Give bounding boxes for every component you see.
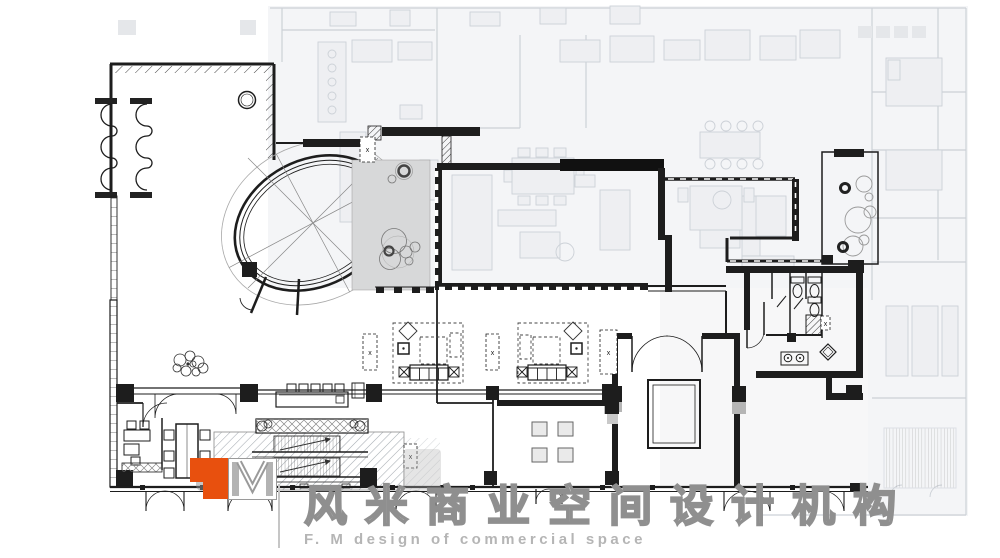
reception-counter <box>276 383 364 407</box>
column-marker: x <box>607 350 611 357</box>
logo-chinese-name: 风米商业空间设计机构 <box>304 484 914 530</box>
logo-f-block <box>190 458 228 499</box>
column-marker: x <box>368 350 372 357</box>
logo-text: 风米商业空间设计机构 F. M design of commercial spa… <box>278 484 914 548</box>
office-room <box>117 403 167 472</box>
gray-panel-room <box>352 160 435 293</box>
column-marker: x <box>366 147 370 154</box>
floor-plan-page: x x x x x x 风米商业空间设计机构 F. M design of co… <box>0 0 1000 558</box>
logo-mark <box>188 458 283 503</box>
logo-english-name: F. M design of commercial space <box>304 531 914 548</box>
logo: 风米商业空间设计机构 F. M design of commercial spa… <box>188 458 978 553</box>
lounge-seating <box>393 322 463 383</box>
entrance-curtain-doors <box>95 98 152 198</box>
logo-m-icon <box>229 459 277 500</box>
column-marker: x <box>491 350 495 357</box>
column-marker: x <box>824 321 828 328</box>
tree-symbol <box>173 351 208 376</box>
lounge-seating <box>517 322 588 383</box>
left-exterior-wall <box>110 196 133 487</box>
